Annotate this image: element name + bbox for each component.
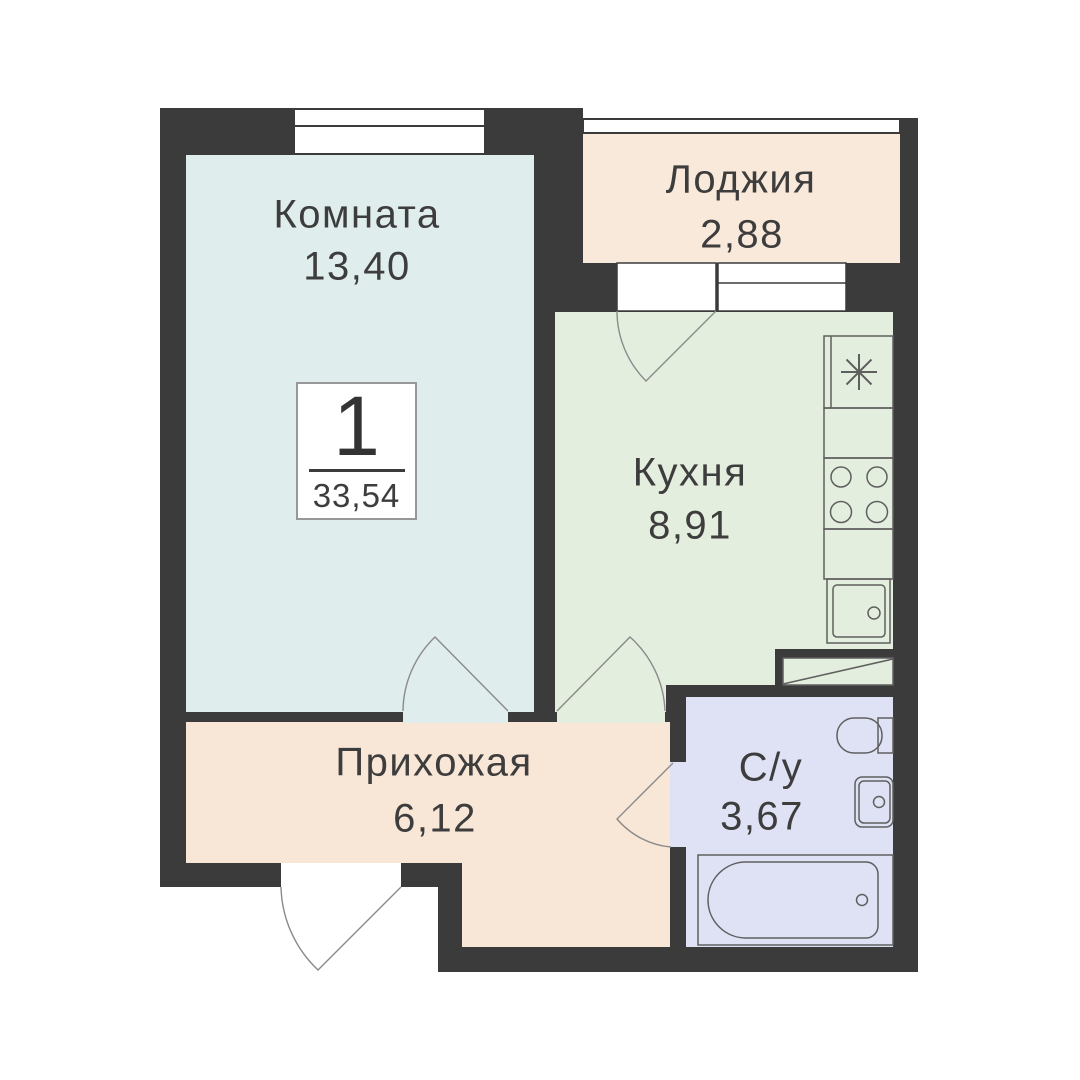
hallway-area: 6,12 xyxy=(393,797,477,842)
floor-hallway-2 xyxy=(462,863,670,947)
hallway-label: Прихожая xyxy=(335,741,532,786)
loggia-glazing xyxy=(583,119,900,133)
loggia-area: 2,88 xyxy=(700,213,784,258)
kitchen-area: 8,91 xyxy=(648,504,732,549)
loggia-label: Лоджия xyxy=(666,158,817,203)
bathroom-area: 3,67 xyxy=(720,795,804,840)
opening-kitchen-door xyxy=(557,711,665,723)
apartment-divider xyxy=(309,469,405,472)
floor-plan-drawing xyxy=(0,0,1080,1080)
balcony-door-opening xyxy=(617,263,716,311)
room-area: 13,40 xyxy=(303,245,411,290)
apartment-badge: 1 33,54 xyxy=(296,382,417,520)
kitchen-label: Кухня xyxy=(633,451,748,496)
bathroom-label: С/у xyxy=(739,746,804,791)
apartment-total-area: 33,54 xyxy=(313,477,401,515)
opening-bathroom-door xyxy=(670,762,686,847)
entrance-door xyxy=(281,887,401,970)
floor-kitchen-3 xyxy=(555,685,666,712)
opening-room-door xyxy=(403,711,508,723)
floor-plan: Комната 13,40 Лоджия 2,88 Кухня 8,91 При… xyxy=(0,0,1080,1080)
apartment-number: 1 xyxy=(333,387,380,467)
room-window xyxy=(294,109,485,154)
room-label: Комната xyxy=(273,193,440,238)
opening-entrance-door xyxy=(281,863,401,887)
balcony-window xyxy=(718,263,846,311)
